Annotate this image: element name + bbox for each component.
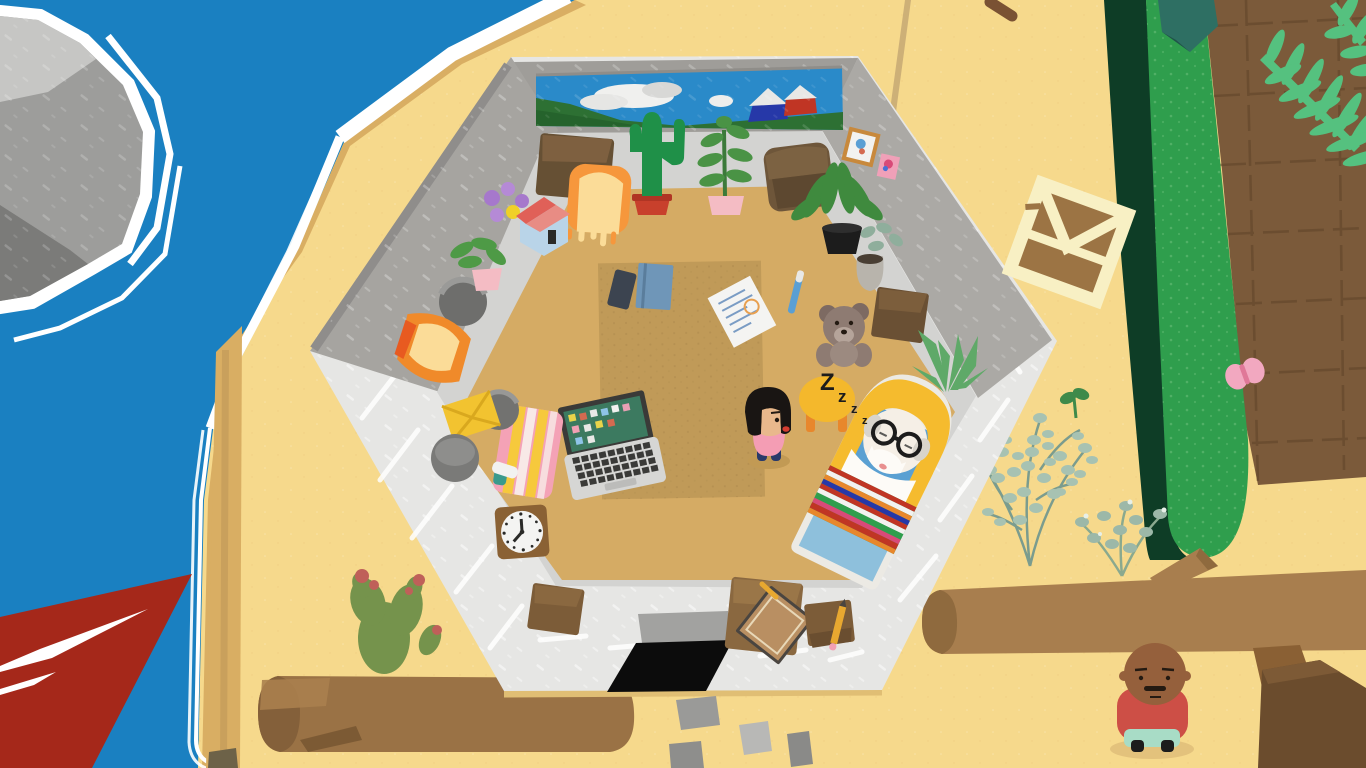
svg-text:z: z — [838, 387, 847, 406]
svg-text:z: z — [851, 401, 858, 416]
svg-text:Z: Z — [820, 369, 835, 396]
svg-text:z: z — [862, 415, 868, 427]
